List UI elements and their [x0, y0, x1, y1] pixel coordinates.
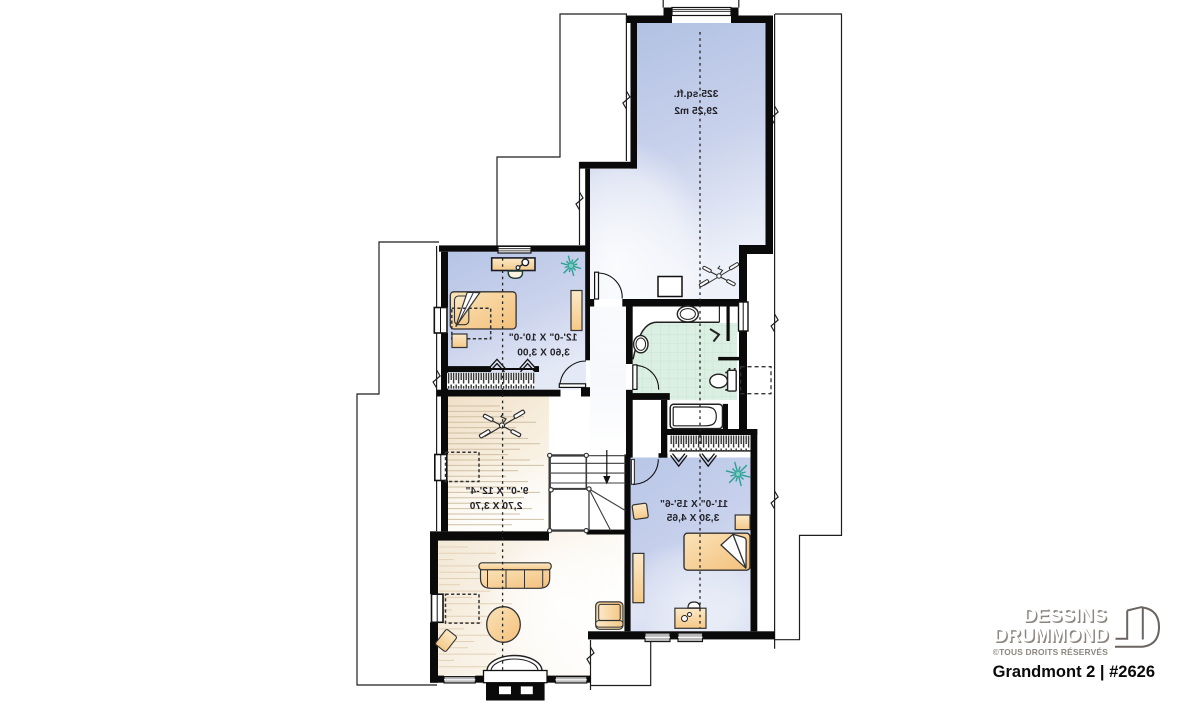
svg-text:9'-0" X 12'-4": 9'-0" X 12'-4"	[465, 486, 528, 497]
svg-text:2,70 X 3,70: 2,70 X 3,70	[469, 501, 522, 512]
svg-text:29,25 m2: 29,25 m2	[674, 106, 718, 117]
svg-text:3,30 X 4,65: 3,30 X 4,65	[666, 513, 719, 524]
svg-text:11'-0" X 15'-6": 11'-0" X 15'-6"	[660, 499, 728, 510]
svg-text:©TOUS DROITS RÉSERVÉS: ©TOUS DROITS RÉSERVÉS	[993, 646, 1108, 657]
svg-text:325 sq.ft.: 325 sq.ft.	[674, 89, 719, 100]
svg-text:DESSINS: DESSINS	[1023, 606, 1106, 627]
svg-text:Grandmont 2 | #2626: Grandmont 2 | #2626	[993, 663, 1155, 681]
svg-text:12'-0" X 10'-0": 12'-0" X 10'-0"	[509, 333, 578, 344]
svg-text:DRUMMOND: DRUMMOND	[993, 626, 1108, 647]
svg-text:3,60 X 3,00: 3,60 X 3,00	[517, 348, 570, 359]
